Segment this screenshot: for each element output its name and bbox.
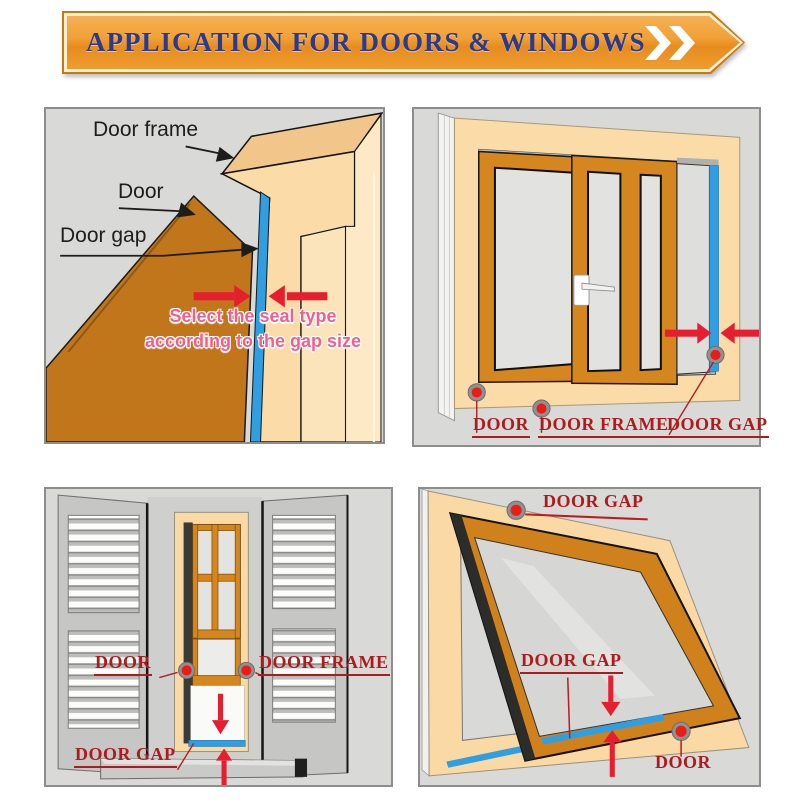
door-label: DOOR (472, 415, 530, 438)
sliding-door-illustration (414, 109, 759, 445)
window-frame-shape (174, 512, 248, 751)
panel-awning-window: DOOR GAP DOOR GAP DOOR (418, 487, 761, 787)
door-gap-label: Door gap (60, 224, 146, 248)
infographic-page: APPLICATION FOR DOORS & WINDOWS (0, 0, 800, 800)
door-gap-seal-strip (709, 166, 718, 372)
door-frame-label: DOOR FRAME (538, 415, 670, 438)
door-gap-label: DOOR GAP (74, 745, 177, 768)
panel-door-corner: Door frame Door Door gap Select the seal… (44, 107, 385, 444)
door-frame-label: Door frame (93, 118, 198, 142)
sash-window-illustration (46, 489, 391, 785)
door-gap-label: DOOR GAP (666, 415, 769, 438)
left-shutter-shape (58, 495, 147, 775)
seal-note-line2: according to the gap size (88, 331, 418, 352)
door-label: Door (118, 180, 164, 204)
door-label: DOOR (654, 753, 712, 774)
door-gap-mid-label: DOOR GAP (520, 651, 623, 674)
panel-sliding-door: DOOR DOOR FRAME DOOR GAP (412, 107, 761, 447)
header-banner: APPLICATION FOR DOORS & WINDOWS (62, 11, 745, 74)
double-chevron-right-icon (645, 26, 703, 60)
right-shutter-shape (263, 495, 348, 777)
panel-sash-window: DOOR DOOR FRAME DOOR GAP (44, 487, 393, 787)
awning-window-illustration (420, 489, 759, 785)
open-gap-shape (191, 686, 245, 741)
seal-note-line1: Select the seal type (88, 306, 418, 327)
door-gap-seal-strip (189, 740, 246, 746)
middle-door-panel-shape (572, 156, 677, 385)
page-title: APPLICATION FOR DOORS & WINDOWS (86, 11, 646, 74)
door-frame-label: DOOR FRAME (258, 653, 390, 676)
door-label: DOOR (94, 653, 152, 676)
door-gap-top-label: DOOR GAP (542, 492, 645, 513)
door-corner-illustration (46, 109, 383, 442)
